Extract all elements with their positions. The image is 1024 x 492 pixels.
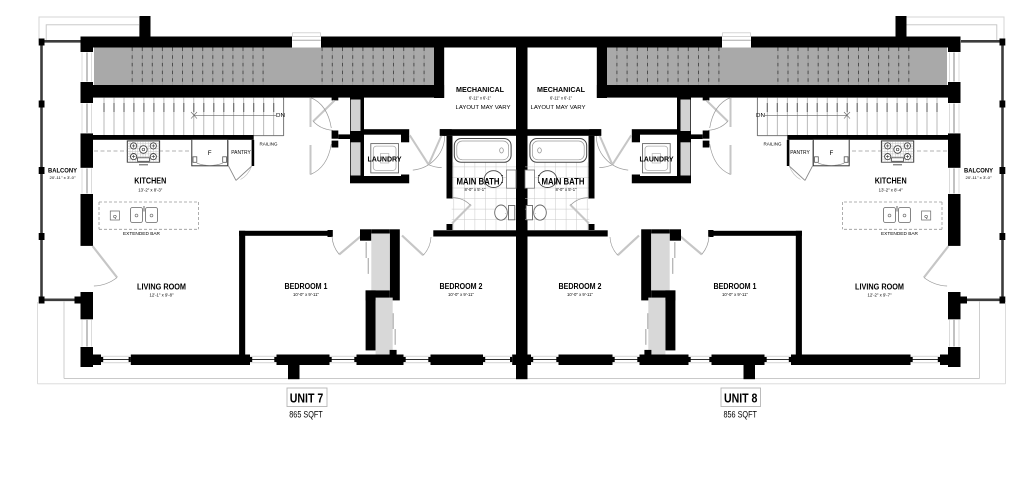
svg-text:F: F bbox=[208, 150, 212, 157]
svg-text:20'-11" x 3'-0": 20'-11" x 3'-0" bbox=[966, 176, 993, 180]
svg-text:MAIN BATH: MAIN BATH bbox=[542, 177, 585, 187]
svg-text:LAUNDRY: LAUNDRY bbox=[368, 154, 402, 163]
svg-text:PANTRY: PANTRY bbox=[231, 150, 251, 156]
svg-text:10'-0" x 9'-11": 10'-0" x 9'-11" bbox=[448, 292, 475, 297]
svg-text:BALCONY: BALCONY bbox=[964, 168, 994, 175]
svg-text:Q: Q bbox=[113, 214, 117, 219]
svg-text:865 SQFT: 865 SQFT bbox=[289, 409, 323, 420]
svg-text:·: · bbox=[505, 211, 506, 216]
svg-text:BEDROOM 1: BEDROOM 1 bbox=[714, 282, 757, 291]
svg-text:BALCONY: BALCONY bbox=[48, 168, 78, 175]
svg-text:8'-0" x 5'-1": 8'-0" x 5'-1" bbox=[556, 187, 577, 192]
svg-text:RAILING: RAILING bbox=[260, 142, 279, 147]
svg-text:EXTENDED BAR: EXTENDED BAR bbox=[881, 231, 919, 236]
svg-text:LAUNDRY: LAUNDRY bbox=[640, 154, 674, 163]
svg-text:EXTENDED BAR: EXTENDED BAR bbox=[123, 231, 161, 236]
svg-text:6'-11" x 6'-1": 6'-11" x 6'-1" bbox=[469, 96, 491, 101]
svg-text:UNIT 7: UNIT 7 bbox=[290, 391, 324, 406]
svg-text:KITCHEN: KITCHEN bbox=[875, 177, 907, 186]
svg-text:MAIN BATH: MAIN BATH bbox=[457, 177, 500, 187]
svg-text:LAYOUT MAY VARY: LAYOUT MAY VARY bbox=[531, 105, 586, 111]
svg-text:·: · bbox=[535, 211, 536, 216]
svg-text:20'-11" x 3'-0": 20'-11" x 3'-0" bbox=[50, 176, 77, 180]
svg-text:LAYOUT MAY VARY: LAYOUT MAY VARY bbox=[456, 105, 511, 111]
svg-text:6'-11" x 6'-1": 6'-11" x 6'-1" bbox=[550, 96, 572, 101]
svg-text:KITCHEN: KITCHEN bbox=[134, 177, 166, 186]
svg-text:PANTRY: PANTRY bbox=[790, 150, 810, 156]
svg-text:RAILING: RAILING bbox=[764, 142, 783, 147]
svg-text:LIVING ROOM: LIVING ROOM bbox=[137, 283, 186, 292]
svg-text:10'-0" x 9'-11": 10'-0" x 9'-11" bbox=[567, 292, 594, 297]
svg-text:MECHANICAL: MECHANICAL bbox=[456, 85, 504, 94]
svg-text:13'-2" x 8'-3": 13'-2" x 8'-3" bbox=[138, 188, 163, 193]
svg-text:Q: Q bbox=[924, 214, 928, 219]
svg-text:10'-0" x 9'-11": 10'-0" x 9'-11" bbox=[293, 292, 320, 297]
svg-text:BEDROOM 2: BEDROOM 2 bbox=[440, 282, 483, 291]
svg-text:UNIT 8: UNIT 8 bbox=[724, 391, 758, 406]
svg-text:12'-1" x 9'-8": 12'-1" x 9'-8" bbox=[150, 293, 175, 298]
svg-text:BEDROOM 2: BEDROOM 2 bbox=[559, 282, 602, 291]
svg-text:12'-2" x 9'-7": 12'-2" x 9'-7" bbox=[868, 293, 893, 298]
svg-text:DN: DN bbox=[756, 113, 765, 119]
svg-text:856 SQFT: 856 SQFT bbox=[723, 409, 757, 420]
svg-text:8'-0" x 5'-1": 8'-0" x 5'-1" bbox=[465, 187, 486, 192]
svg-text:BEDROOM 1: BEDROOM 1 bbox=[285, 282, 328, 291]
svg-text:13'-2" x 8'-4": 13'-2" x 8'-4" bbox=[879, 188, 904, 193]
svg-text:MECHANICAL: MECHANICAL bbox=[537, 85, 585, 94]
svg-text:F: F bbox=[830, 150, 834, 157]
svg-text:10'-0" x 9'-11": 10'-0" x 9'-11" bbox=[722, 292, 749, 297]
svg-text:LIVING ROOM: LIVING ROOM bbox=[855, 283, 904, 292]
svg-text:DN: DN bbox=[276, 113, 285, 119]
